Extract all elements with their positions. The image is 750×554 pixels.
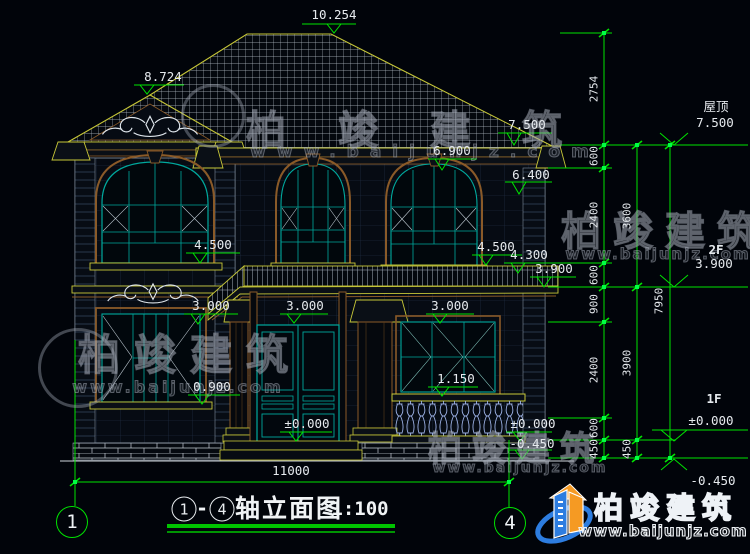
watermark-ring-icon <box>38 328 118 408</box>
dim-chain-inner-3: 600 <box>589 265 600 285</box>
dim-chain-inner-4: 900 <box>589 294 600 314</box>
axis-bubble-4: 4 <box>494 507 526 539</box>
level-label-window2f-top: 6.400 <box>512 169 550 182</box>
level-label-sill2f-right: 4.500 <box>477 241 515 254</box>
watermark-ring-icon <box>181 84 245 148</box>
level-label-door-ground: ±0.000 <box>284 418 329 431</box>
title-axis-to: 4 <box>210 497 235 522</box>
dim-chain-inner-0: 2754 <box>589 76 600 103</box>
title-underline <box>167 524 395 528</box>
porch-balustrade <box>392 394 525 443</box>
dim-width: 11000 <box>272 465 310 478</box>
dim-chain-inner-5: 2400 <box>589 357 600 384</box>
floor-level-1f: ±0.000 <box>688 415 733 428</box>
plinth <box>60 441 574 461</box>
cad-elevation-viewport: 柏竣建筑 www.baijunjz.com 柏竣建筑 www.baijunjz.… <box>0 0 750 554</box>
level-label-side-neg: -0.450 <box>509 438 554 451</box>
level-label-porch-roof: 4.300 <box>510 249 548 262</box>
level-label-ridge: 10.254 <box>311 9 356 22</box>
level-label-sill1f-left: 0.900 <box>193 381 231 394</box>
brand-logo-url: www.baijunjz.com <box>578 522 747 540</box>
level-label-window1f-top-left: 3.000 <box>192 300 230 313</box>
level-label-eave: 7.500 <box>508 119 546 132</box>
axis-bubble-1: 1 <box>56 506 88 538</box>
level-label-side-zero: ±0.000 <box>510 418 555 431</box>
dim-chain-inner-2: 2400 <box>589 202 600 229</box>
right-quoin <box>523 168 545 443</box>
title-axis-from: 1 <box>172 497 197 522</box>
level-label-window1f-top-center: 3.000 <box>286 300 324 313</box>
level-label-window1f-top-right: 3.000 <box>431 300 469 313</box>
title-underline-thin <box>167 531 395 533</box>
level-label-railing: 1.150 <box>437 373 475 386</box>
floor-level-roof: 7.500 <box>696 117 734 130</box>
floor-label-2f: 2F <box>708 244 723 257</box>
level-label-sill2f-left: 4.500 <box>194 239 232 252</box>
dim-chain-mid-2: 450 <box>622 439 633 459</box>
dim-chain-inner-7: 450 <box>589 439 600 459</box>
level-label-gable-peak: 8.724 <box>144 71 182 84</box>
level-label-floor2-edge: 3.900 <box>535 263 573 276</box>
floor-label-1f: 1F <box>706 393 721 406</box>
floor-label-roof: 屋顶 <box>703 101 728 114</box>
brand-logo-text: 柏竣建筑 <box>594 485 738 527</box>
dim-chain-inner-6: 600 <box>589 418 600 438</box>
dim-chain-mid-0: 3600 <box>622 203 633 230</box>
level-label-cornice: 6.900 <box>433 145 471 158</box>
title-dash: - <box>198 496 208 520</box>
floor-level-2f: 3.900 <box>695 258 733 271</box>
elevation-drawing <box>0 0 750 554</box>
drawing-title: 轴立面图 <box>235 489 343 525</box>
dim-chain-inner-1: 600 <box>589 146 600 166</box>
window-2f-center <box>271 154 355 270</box>
dim-chain-mid-1: 3900 <box>622 350 633 377</box>
dim-chain-total: 7950 <box>654 288 665 315</box>
drawing-scale: 1:100 <box>331 498 388 520</box>
